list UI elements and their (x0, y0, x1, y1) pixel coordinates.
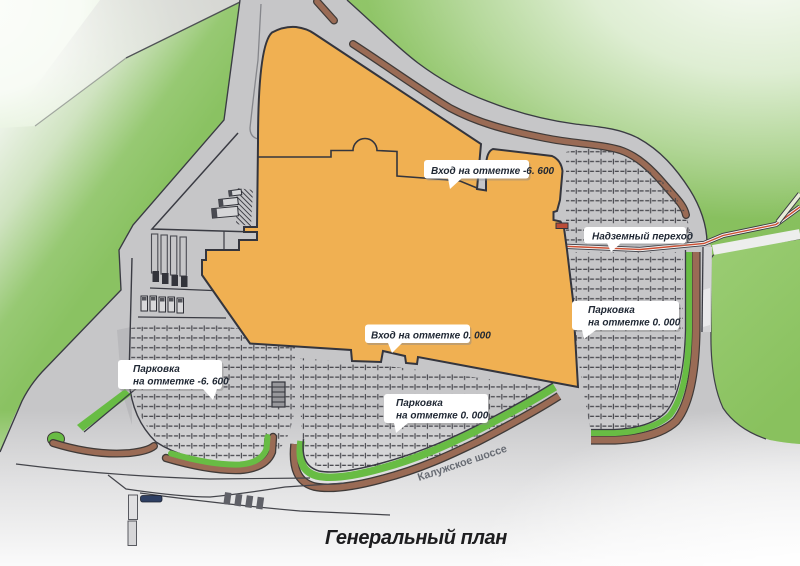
svg-text:Вход на отметке -6. 600: Вход на отметке -6. 600 (431, 166, 555, 177)
svg-text:на отметке -6. 600: на отметке -6. 600 (133, 377, 229, 388)
svg-text:на отметке 0. 000: на отметке 0. 000 (396, 411, 489, 422)
svg-text:Вход на отметке 0. 000: Вход на отметке 0. 000 (371, 331, 491, 342)
svg-text:Парковка: Парковка (588, 305, 635, 316)
svg-text:Парковка: Парковка (133, 364, 180, 375)
svg-text:на отметке 0. 000: на отметке 0. 000 (588, 318, 681, 329)
svg-text:Надземный переход: Надземный переход (592, 232, 693, 243)
svg-text:Парковка: Парковка (396, 398, 443, 409)
svg-text:Генеральный план: Генеральный план (325, 527, 507, 549)
